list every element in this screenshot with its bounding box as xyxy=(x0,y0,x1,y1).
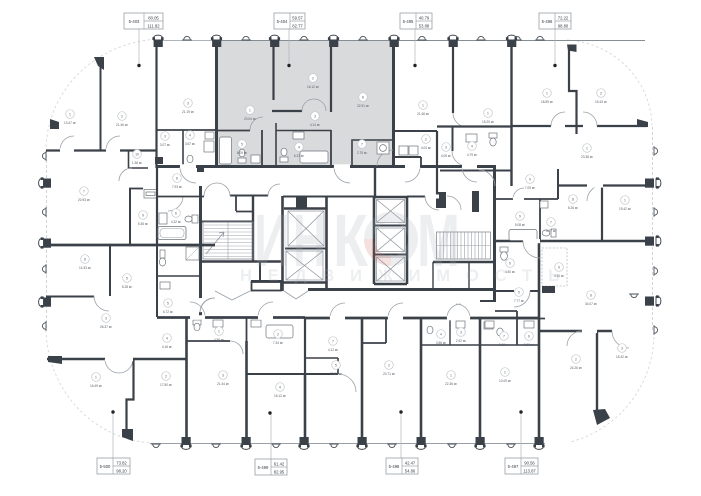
svg-text:5-495: 5-495 xyxy=(403,19,414,24)
svg-text:22.36 м²: 22.36 м² xyxy=(445,382,457,386)
svg-text:3: 3 xyxy=(222,374,224,378)
svg-text:21.46 м²: 21.46 м² xyxy=(116,123,128,127)
svg-text:111.82: 111.82 xyxy=(147,24,160,29)
svg-text:40.79: 40.79 xyxy=(419,16,430,21)
svg-text:4.05 м²: 4.05 м² xyxy=(441,154,451,158)
svg-text:3.07 м²: 3.07 м² xyxy=(160,143,170,147)
svg-text:7.34 м²: 7.34 м² xyxy=(273,341,283,345)
svg-text:8: 8 xyxy=(176,177,178,181)
svg-text:3: 3 xyxy=(164,135,166,139)
svg-text:4: 4 xyxy=(189,134,191,138)
svg-text:4.79 м²: 4.79 м² xyxy=(467,153,477,157)
svg-text:4.50 м²: 4.50 м² xyxy=(505,270,515,274)
svg-text:59.57: 59.57 xyxy=(292,16,303,21)
svg-text:16.12 м²: 16.12 м² xyxy=(274,394,286,398)
svg-text:8: 8 xyxy=(362,96,364,100)
svg-text:4: 4 xyxy=(279,386,281,390)
svg-text:5: 5 xyxy=(335,364,337,368)
svg-text:7: 7 xyxy=(503,335,505,339)
svg-text:3.27 м²: 3.27 м² xyxy=(546,229,556,233)
svg-text:6.09 м²: 6.09 м² xyxy=(237,151,247,155)
svg-text:6.37 м²: 6.37 м² xyxy=(294,154,304,158)
svg-text:2: 2 xyxy=(600,92,602,96)
svg-text:8: 8 xyxy=(590,294,592,298)
svg-text:34.07 м²: 34.07 м² xyxy=(585,302,597,306)
svg-text:2: 2 xyxy=(575,358,577,362)
svg-text:3: 3 xyxy=(460,331,462,335)
svg-text:2: 2 xyxy=(121,115,123,119)
svg-text:6: 6 xyxy=(509,262,511,266)
svg-text:5: 5 xyxy=(126,277,128,281)
svg-text:5: 5 xyxy=(241,143,243,147)
svg-text:5: 5 xyxy=(167,302,169,306)
svg-text:2.92 м²: 2.92 м² xyxy=(456,339,466,343)
svg-text:4: 4 xyxy=(298,146,300,150)
svg-text:53.88: 53.88 xyxy=(419,24,430,29)
svg-text:1.38 м²: 1.38 м² xyxy=(132,161,142,165)
svg-text:5.26 м²: 5.26 м² xyxy=(568,206,578,210)
svg-text:9: 9 xyxy=(529,178,531,182)
svg-text:2: 2 xyxy=(312,77,314,81)
svg-text:5-497: 5-497 xyxy=(508,464,519,469)
svg-text:2: 2 xyxy=(425,138,427,142)
svg-text:3: 3 xyxy=(445,146,447,150)
svg-text:5.28 м²: 5.28 м² xyxy=(122,285,132,289)
svg-text:5-499: 5-499 xyxy=(258,465,269,470)
svg-text:54.86: 54.86 xyxy=(405,469,416,474)
svg-text:8: 8 xyxy=(572,198,574,202)
svg-text:20.04 м²: 20.04 м² xyxy=(244,117,256,121)
svg-text:16.49 м²: 16.49 м² xyxy=(90,384,102,388)
svg-text:1: 1 xyxy=(69,113,71,117)
svg-text:21.46 м²: 21.46 м² xyxy=(417,112,429,116)
svg-text:5-500: 5-500 xyxy=(100,464,111,469)
svg-text:1: 1 xyxy=(249,109,251,113)
svg-text:5-404: 5-404 xyxy=(277,19,288,24)
svg-text:4.16 м²: 4.16 м² xyxy=(162,345,172,349)
svg-text:5-498: 5-498 xyxy=(389,464,400,469)
svg-text:3.66 м²: 3.66 м² xyxy=(499,343,509,347)
svg-text:5.36 м²: 5.36 м² xyxy=(138,222,148,226)
svg-text:8: 8 xyxy=(84,258,86,262)
svg-text:24.26 м²: 24.26 м² xyxy=(570,366,582,370)
svg-text:3: 3 xyxy=(621,347,623,351)
svg-text:23.80 м²: 23.80 м² xyxy=(330,372,342,376)
svg-text:15.43 м²: 15.43 м² xyxy=(595,100,607,104)
svg-text:16.12 м²: 16.12 м² xyxy=(307,85,319,89)
svg-text:1: 1 xyxy=(586,147,588,151)
svg-text:82.77: 82.77 xyxy=(292,24,303,29)
svg-text:4.32 м²: 4.32 м² xyxy=(171,220,181,224)
svg-text:4: 4 xyxy=(471,145,473,149)
svg-text:3.56 м²: 3.56 м² xyxy=(436,341,446,345)
svg-text:18.59 м²: 18.59 м² xyxy=(541,100,553,104)
svg-text:3: 3 xyxy=(105,317,107,321)
svg-text:6: 6 xyxy=(528,335,530,339)
svg-text:3.67 м²: 3.67 м² xyxy=(185,142,195,146)
svg-text:2: 2 xyxy=(165,375,167,379)
svg-text:4.14 м²: 4.14 м² xyxy=(310,123,320,127)
svg-text:5-403: 5-403 xyxy=(129,19,140,24)
svg-text:7: 7 xyxy=(83,190,85,194)
svg-text:13.47 м²: 13.47 м² xyxy=(64,121,76,125)
svg-text:5-496: 5-496 xyxy=(542,19,553,24)
svg-text:23.38 м²: 23.38 м² xyxy=(581,155,593,159)
svg-text:4.56 м²: 4.56 м² xyxy=(214,338,224,342)
svg-text:3: 3 xyxy=(187,102,189,106)
svg-text:7: 7 xyxy=(550,221,552,225)
svg-text:20.93 м²: 20.93 м² xyxy=(78,198,90,202)
svg-text:4: 4 xyxy=(440,333,442,337)
svg-text:7.77 м²: 7.77 м² xyxy=(514,299,524,303)
svg-text:5.08 м²: 5.08 м² xyxy=(515,223,525,227)
svg-text:113.87: 113.87 xyxy=(523,469,536,474)
svg-text:7: 7 xyxy=(361,143,363,147)
svg-text:22.91 м²: 22.91 м² xyxy=(357,104,369,108)
svg-text:7.09 м²: 7.09 м² xyxy=(525,186,535,190)
svg-text:2.75 м²: 2.75 м² xyxy=(357,151,367,155)
svg-text:15.42 м²: 15.42 м² xyxy=(616,355,628,359)
svg-text:90.56: 90.56 xyxy=(524,461,535,466)
svg-text:98.80: 98.80 xyxy=(558,24,569,29)
svg-text:2: 2 xyxy=(388,364,390,368)
svg-text:98.20: 98.20 xyxy=(116,469,127,474)
svg-text:14.33 м²: 14.33 м² xyxy=(79,266,91,270)
svg-text:10.09 м²: 10.09 м² xyxy=(499,379,511,383)
svg-text:4.04 м²: 4.04 м² xyxy=(421,146,431,150)
svg-text:1: 1 xyxy=(450,374,452,378)
svg-text:1: 1 xyxy=(546,92,548,96)
svg-text:3.00 м²: 3.00 м² xyxy=(524,343,534,347)
svg-text:5: 5 xyxy=(518,291,520,295)
svg-text:1: 1 xyxy=(218,330,220,334)
svg-text:72.22: 72.22 xyxy=(558,16,569,21)
svg-text:1: 1 xyxy=(624,199,626,203)
svg-text:1: 1 xyxy=(487,112,489,116)
svg-text:15.20 м²: 15.20 м² xyxy=(482,120,494,124)
svg-text:10: 10 xyxy=(135,153,139,157)
svg-text:1: 1 xyxy=(504,371,506,375)
svg-text:1: 1 xyxy=(95,376,97,380)
svg-text:21.19 м²: 21.19 м² xyxy=(182,110,194,114)
svg-text:4.12 м²: 4.12 м² xyxy=(328,348,338,352)
svg-text:1: 1 xyxy=(422,104,424,108)
svg-text:82.95: 82.95 xyxy=(274,470,285,475)
svg-text:9: 9 xyxy=(519,215,521,219)
svg-text:17.50 м²: 17.50 м² xyxy=(160,383,172,387)
svg-text:2: 2 xyxy=(277,333,279,337)
svg-text:7: 7 xyxy=(332,340,334,344)
svg-text:3: 3 xyxy=(314,115,316,119)
svg-text:6.72 м²: 6.72 м² xyxy=(163,310,173,314)
svg-text:26.37 м²: 26.37 м² xyxy=(100,325,112,329)
svg-text:73.82: 73.82 xyxy=(116,461,127,466)
svg-text:42.47: 42.47 xyxy=(405,461,416,466)
svg-text:21.44 м²: 21.44 м² xyxy=(217,382,229,386)
svg-text:6: 6 xyxy=(175,212,177,216)
svg-text:80.05: 80.05 xyxy=(148,16,159,21)
svg-text:4: 4 xyxy=(166,337,168,341)
svg-text:9: 9 xyxy=(142,214,144,218)
svg-text:61.42: 61.42 xyxy=(274,462,285,467)
svg-text:7.93 м²: 7.93 м² xyxy=(172,185,182,189)
svg-text:20.71 м²: 20.71 м² xyxy=(383,372,395,376)
svg-text:19.42 м²: 19.42 м² xyxy=(619,207,631,211)
